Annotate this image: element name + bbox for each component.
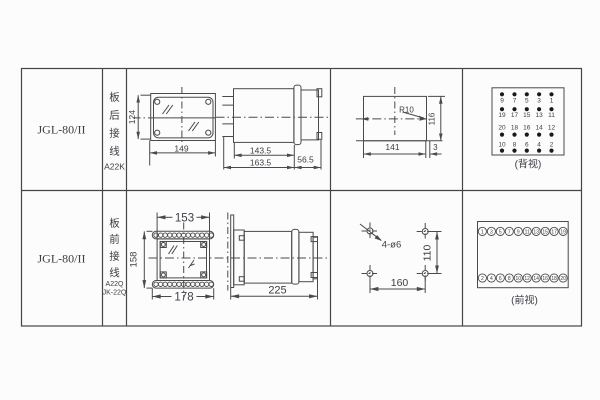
svg-text:A22Q: A22Q bbox=[106, 281, 124, 288]
svg-text:18: 18 bbox=[511, 124, 519, 131]
svg-text:124: 124 bbox=[127, 110, 137, 124]
svg-text:11: 11 bbox=[548, 112, 555, 119]
svg-text:19: 19 bbox=[498, 112, 506, 119]
svg-text:110: 110 bbox=[421, 244, 433, 261]
svg-text:17: 17 bbox=[511, 112, 519, 119]
svg-text:8: 8 bbox=[508, 276, 511, 282]
svg-text:153: 153 bbox=[175, 213, 194, 225]
svg-text:15: 15 bbox=[523, 112, 531, 119]
svg-text:163.5: 163.5 bbox=[250, 158, 272, 168]
svg-text:5: 5 bbox=[499, 229, 502, 235]
svg-text:4-ø6: 4-ø6 bbox=[382, 240, 402, 251]
svg-text:4: 4 bbox=[490, 276, 493, 282]
svg-text:158: 158 bbox=[129, 252, 140, 268]
svg-text:11: 11 bbox=[525, 229, 530, 235]
svg-text:8: 8 bbox=[513, 142, 517, 149]
svg-text:17: 17 bbox=[551, 229, 557, 235]
svg-text:225: 225 bbox=[268, 284, 286, 296]
svg-text:13: 13 bbox=[535, 112, 543, 119]
svg-text:149: 149 bbox=[174, 144, 188, 154]
svg-text:16: 16 bbox=[523, 124, 531, 131]
svg-text:(前视): (前视) bbox=[511, 294, 538, 307]
svg-text:20: 20 bbox=[498, 124, 506, 131]
svg-text:接: 接 bbox=[109, 127, 120, 140]
svg-text:JGL-80/II: JGL-80/II bbox=[38, 252, 86, 266]
svg-text:160: 160 bbox=[391, 277, 409, 289]
svg-text:18: 18 bbox=[551, 276, 557, 282]
svg-text:56.5: 56.5 bbox=[297, 155, 314, 165]
svg-text:7: 7 bbox=[508, 229, 511, 235]
svg-text:6: 6 bbox=[525, 142, 529, 149]
svg-text:13: 13 bbox=[533, 229, 539, 235]
svg-text:板: 板 bbox=[109, 217, 120, 230]
svg-text:10: 10 bbox=[498, 142, 506, 149]
svg-text:16: 16 bbox=[542, 276, 548, 282]
svg-text:4: 4 bbox=[537, 142, 541, 149]
svg-text:2: 2 bbox=[550, 142, 554, 149]
svg-text:(背视): (背视) bbox=[515, 158, 542, 171]
svg-text:JGL-80/II: JGL-80/II bbox=[38, 123, 86, 137]
svg-text:前: 前 bbox=[109, 233, 120, 246]
svg-text:A22K: A22K bbox=[104, 162, 125, 172]
svg-text:9: 9 bbox=[500, 97, 504, 104]
svg-text:14: 14 bbox=[533, 276, 539, 282]
svg-text:接: 接 bbox=[109, 250, 120, 263]
svg-text:板: 板 bbox=[109, 91, 120, 104]
svg-text:15: 15 bbox=[542, 229, 548, 235]
svg-text:143.5: 143.5 bbox=[250, 146, 272, 156]
svg-text:5: 5 bbox=[525, 97, 529, 104]
svg-text:12: 12 bbox=[524, 276, 530, 282]
svg-text:1: 1 bbox=[550, 97, 554, 104]
svg-text:12: 12 bbox=[548, 124, 556, 131]
svg-text:7: 7 bbox=[513, 97, 517, 104]
svg-text:线: 线 bbox=[109, 266, 120, 279]
svg-text:19: 19 bbox=[560, 229, 566, 235]
svg-text:3: 3 bbox=[490, 229, 493, 235]
svg-text:3: 3 bbox=[433, 143, 438, 152]
svg-text:116: 116 bbox=[427, 112, 436, 125]
svg-text:1: 1 bbox=[481, 229, 484, 235]
svg-text:9: 9 bbox=[517, 229, 520, 235]
svg-text:后: 后 bbox=[109, 110, 120, 122]
svg-text:141: 141 bbox=[385, 142, 399, 152]
svg-text:线: 线 bbox=[109, 145, 120, 158]
svg-text:JK-22Q: JK-22Q bbox=[103, 290, 127, 297]
svg-text:20: 20 bbox=[560, 276, 566, 282]
svg-text:2: 2 bbox=[481, 276, 484, 282]
svg-text:14: 14 bbox=[535, 124, 543, 131]
svg-text:3: 3 bbox=[537, 97, 541, 104]
svg-text:6: 6 bbox=[499, 276, 502, 282]
svg-text:R10: R10 bbox=[399, 106, 414, 115]
svg-text:10: 10 bbox=[516, 276, 522, 282]
svg-text:178: 178 bbox=[174, 292, 193, 304]
